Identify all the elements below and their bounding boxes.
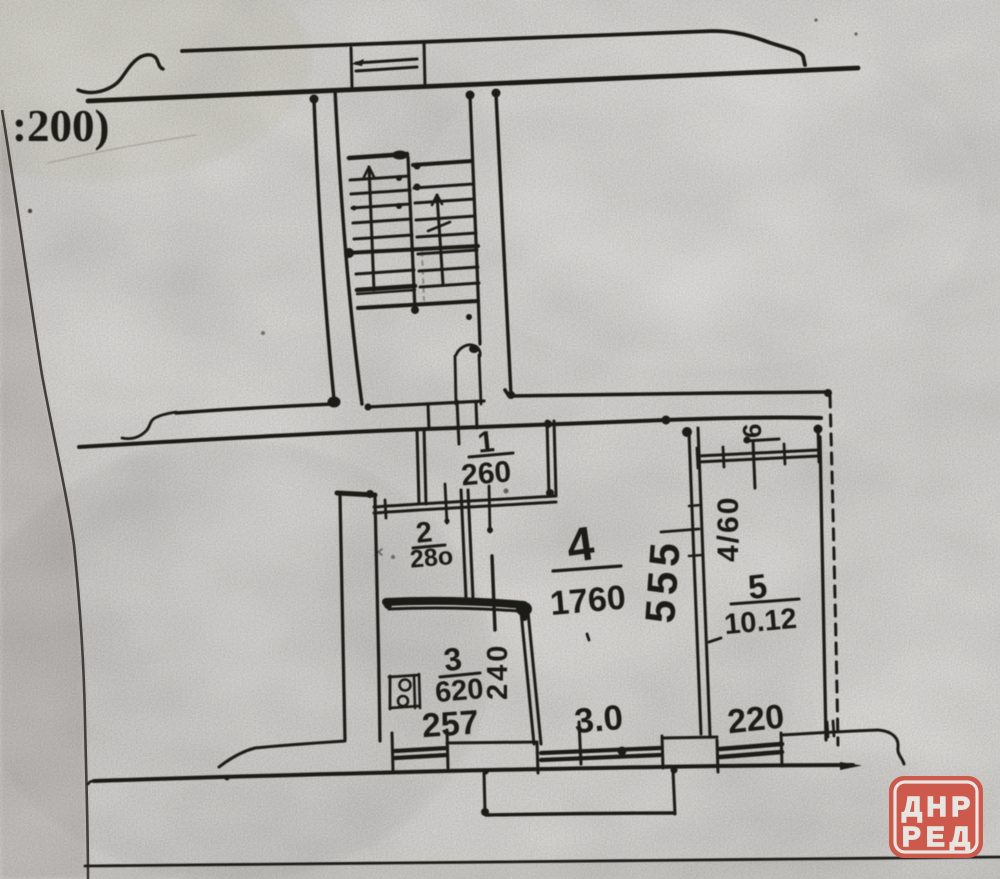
svg-text:10.12: 10.12 <box>723 603 798 641</box>
svg-text::200): :200) <box>12 101 109 151</box>
svg-text:257: 257 <box>421 703 480 745</box>
svg-text:ДНР: ДНР <box>902 791 970 822</box>
svg-text:260: 260 <box>460 455 513 492</box>
svg-text:220: 220 <box>726 698 786 742</box>
svg-text:6: 6 <box>737 424 767 438</box>
svg-text:555: 555 <box>636 536 689 624</box>
svg-text:28o: 28o <box>409 542 454 574</box>
svg-text:РЕД: РЕД <box>902 821 970 852</box>
svg-text:3.0: 3.0 <box>573 698 625 741</box>
svg-text:1760: 1760 <box>549 579 628 623</box>
svg-text:240: 240 <box>482 643 514 700</box>
svg-text:4/60: 4/60 <box>712 496 745 562</box>
